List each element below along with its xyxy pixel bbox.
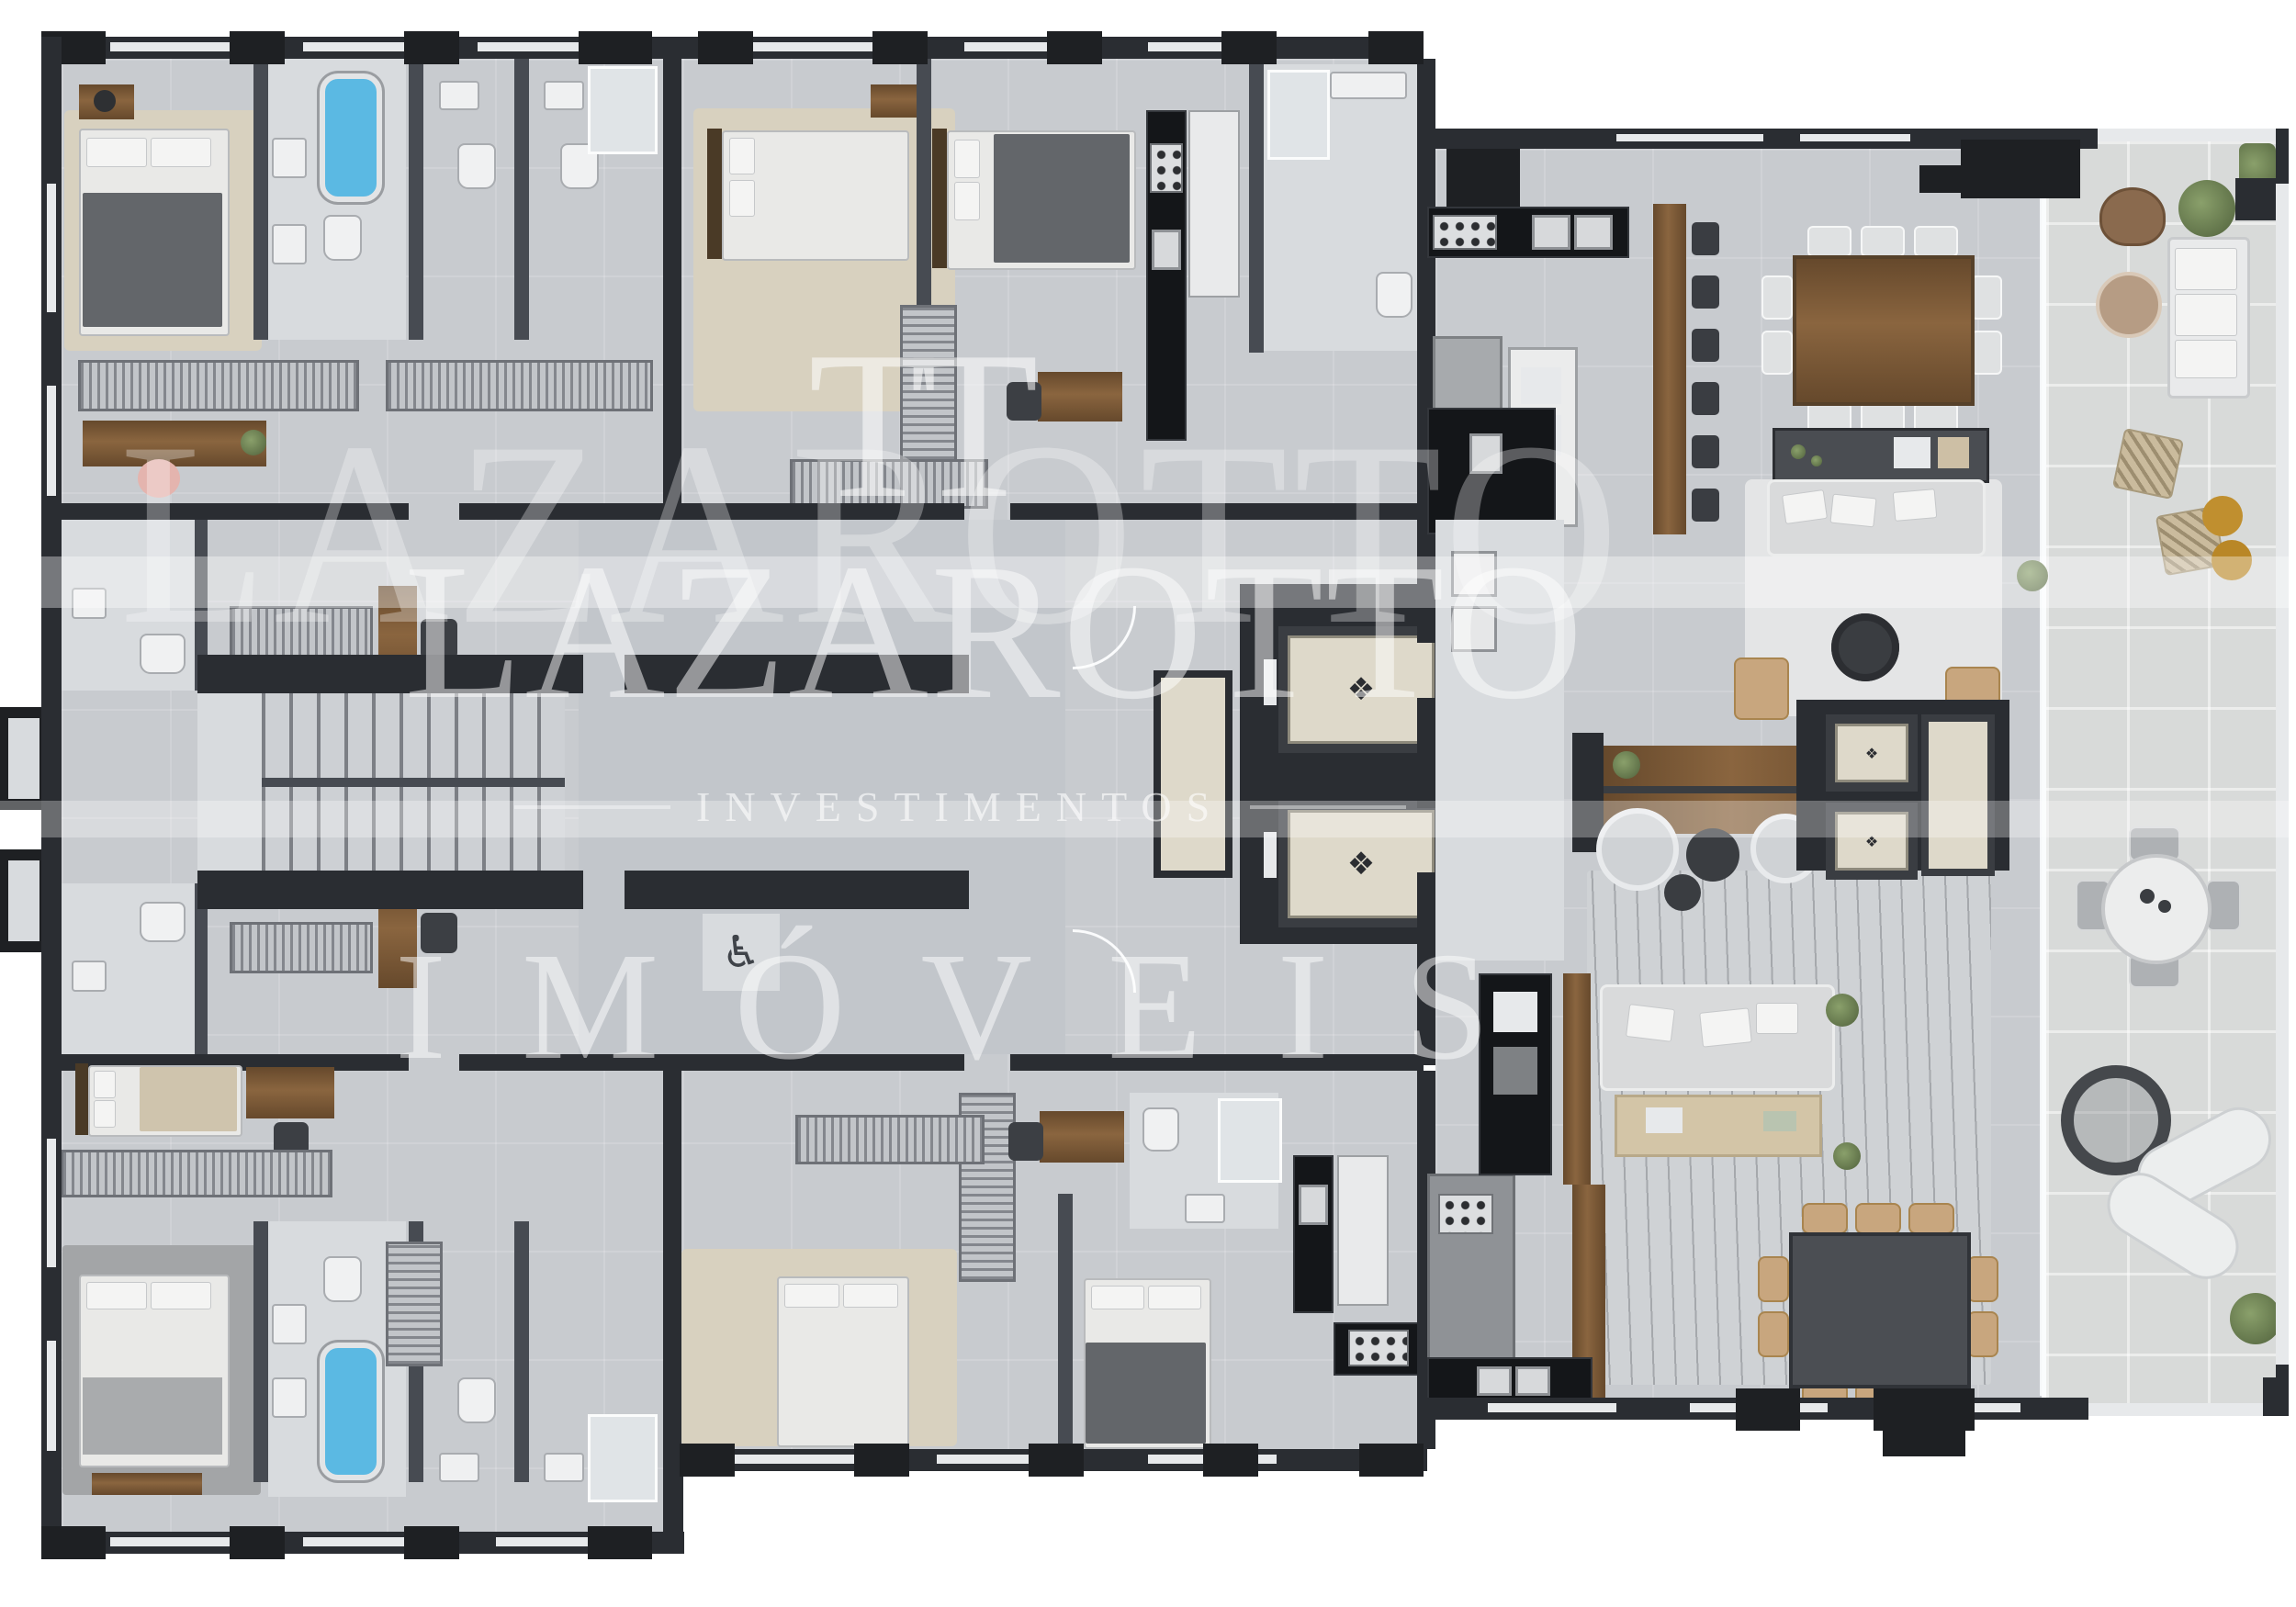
lounge-chair-leather bbox=[2099, 187, 2166, 246]
bed-pillow bbox=[784, 1284, 839, 1308]
toilet bbox=[323, 215, 362, 261]
sofa-cushion bbox=[2175, 340, 2237, 378]
hall-floor bbox=[579, 520, 1065, 1054]
sofa-pillow bbox=[1893, 489, 1938, 522]
dining-table-wood bbox=[1793, 255, 1975, 406]
sofa-cushion bbox=[2175, 294, 2237, 336]
facade-pillar bbox=[1203, 1444, 1258, 1477]
dining-chair bbox=[1802, 1203, 1848, 1234]
closet-rail bbox=[230, 922, 373, 973]
bed-headboard bbox=[932, 129, 947, 268]
bar-stool bbox=[1692, 329, 1719, 362]
stair-wall-top bbox=[197, 655, 583, 693]
wall-wc-bath2 bbox=[514, 1221, 529, 1482]
bath2-sink bbox=[544, 81, 584, 110]
oven bbox=[1521, 367, 1561, 404]
nightstand bbox=[871, 84, 922, 118]
toilet bbox=[140, 634, 186, 674]
facade-pillar bbox=[1221, 31, 1277, 64]
wc-sink bbox=[72, 961, 107, 992]
window-sill bbox=[753, 42, 891, 51]
vanity-sink bbox=[272, 1377, 307, 1418]
dining-chair bbox=[1967, 1256, 1998, 1302]
dining-chair bbox=[1758, 1256, 1789, 1302]
bathtub bbox=[320, 1343, 382, 1480]
toilet bbox=[457, 143, 496, 189]
dining-chair bbox=[1914, 226, 1958, 257]
window-sill bbox=[47, 1341, 56, 1451]
bed-blanket bbox=[1086, 1343, 1206, 1444]
bar-stool bbox=[1692, 222, 1719, 255]
bar-stool bbox=[1692, 275, 1719, 309]
bathtub bbox=[320, 73, 382, 202]
plant bbox=[2178, 180, 2235, 237]
facade-pillar bbox=[854, 1444, 909, 1477]
staircase-flight-down bbox=[262, 786, 565, 871]
facade-niche-inner bbox=[8, 718, 39, 799]
stair-wall-bottom bbox=[197, 871, 583, 909]
facade-pillar bbox=[404, 1526, 459, 1559]
elevator-medallion-icon: ❖ bbox=[1347, 671, 1375, 708]
plant bbox=[1833, 1142, 1861, 1170]
private-core-shaft bbox=[1921, 714, 1995, 876]
closet-rail bbox=[386, 1242, 443, 1366]
kitchen2-sink bbox=[1515, 1366, 1550, 1396]
cooktop bbox=[1433, 215, 1497, 250]
wc-sink bbox=[439, 81, 479, 110]
wall-left-right-wing bbox=[1417, 698, 1435, 808]
pouf-yellow bbox=[2212, 540, 2252, 580]
wall-mid-top bbox=[1010, 503, 1424, 520]
window-sill bbox=[478, 42, 588, 51]
kitchen-double-sink bbox=[1532, 215, 1570, 250]
appliance bbox=[1493, 1047, 1537, 1095]
bed-pillow bbox=[954, 140, 980, 178]
stone-side-table bbox=[2096, 272, 2162, 338]
vanity-sink bbox=[272, 1304, 307, 1344]
bed-headboard bbox=[75, 1063, 88, 1135]
toilet bbox=[140, 902, 186, 942]
wall-bedrooms bbox=[917, 59, 931, 318]
bed-pillow bbox=[151, 1282, 211, 1309]
shower bbox=[588, 1414, 658, 1502]
sofa-pillow bbox=[1626, 1004, 1675, 1042]
dining-chair bbox=[1861, 226, 1905, 257]
window-sill bbox=[110, 42, 248, 51]
facade-niche-inner bbox=[8, 860, 39, 941]
vanity-sink bbox=[1185, 1194, 1225, 1223]
elevator-door bbox=[1264, 832, 1277, 878]
closet-rail bbox=[78, 360, 359, 411]
desk bbox=[246, 1067, 334, 1118]
bed-pillow bbox=[729, 138, 755, 174]
window-sill bbox=[1616, 134, 1763, 141]
private-elevator-cabin: ❖ bbox=[1826, 803, 1918, 880]
dining-chair bbox=[1855, 1203, 1901, 1234]
table-decor bbox=[2140, 889, 2155, 904]
vanity-sink bbox=[1330, 72, 1407, 99]
facade-pillar bbox=[41, 1526, 106, 1559]
bar-counter bbox=[1653, 204, 1686, 534]
shower bbox=[1218, 1098, 1282, 1183]
cooktop bbox=[1150, 143, 1183, 193]
kitchen-double-sink bbox=[1574, 215, 1613, 250]
dining-chair bbox=[1761, 331, 1793, 375]
bar-stool bbox=[1692, 489, 1719, 522]
facade-pillar bbox=[404, 31, 459, 64]
dining-chair bbox=[1971, 331, 2002, 375]
tall-cabinet bbox=[1563, 973, 1591, 1185]
dressing-desk bbox=[83, 421, 266, 466]
plant bbox=[1811, 455, 1822, 466]
closet-rail bbox=[795, 1115, 985, 1164]
wall-mid-top bbox=[459, 503, 964, 520]
sofa-pillow bbox=[1756, 1003, 1798, 1034]
dining-chair bbox=[1971, 275, 2002, 320]
island-sink bbox=[1469, 433, 1503, 474]
side-table-round bbox=[1596, 808, 1679, 891]
console-books bbox=[1763, 1111, 1796, 1131]
armchair bbox=[1734, 657, 1789, 720]
elevator-medallion-icon: ❖ bbox=[1865, 833, 1878, 850]
pouf-yellow bbox=[2202, 496, 2243, 536]
bed-pillow bbox=[1148, 1286, 1201, 1309]
shower bbox=[1267, 70, 1330, 160]
private-elevator-cabin: ❖ bbox=[1826, 714, 1918, 792]
bed-pillow bbox=[151, 138, 211, 167]
wc-sink bbox=[439, 1453, 479, 1482]
bed-pillow bbox=[954, 182, 980, 220]
vanity-sink bbox=[272, 138, 307, 178]
desk-chair bbox=[421, 913, 457, 953]
bed-headboard bbox=[707, 129, 722, 259]
desk-chair bbox=[1008, 1122, 1043, 1161]
elevator-medallion-icon: ❖ bbox=[1865, 745, 1878, 762]
terrace-round-table bbox=[2101, 854, 2212, 964]
wall-bed-bath bbox=[253, 1221, 268, 1482]
facade-pillar bbox=[1359, 1444, 1424, 1477]
facade-pillar bbox=[230, 31, 285, 64]
dressing-chair bbox=[138, 459, 180, 498]
dining-chair bbox=[1761, 275, 1793, 320]
kitchen-sink bbox=[1152, 230, 1181, 270]
wall-bedrooms bbox=[1058, 1194, 1073, 1469]
closet-rail bbox=[61, 1150, 332, 1197]
wall-mid-bottom bbox=[1010, 1054, 1424, 1071]
dining-chair bbox=[1967, 1311, 1998, 1357]
plant bbox=[1613, 751, 1640, 779]
terrace-railing bbox=[2276, 129, 2289, 1416]
washer bbox=[1451, 551, 1497, 597]
bar-stool bbox=[1692, 435, 1719, 468]
table-decor bbox=[2158, 900, 2171, 913]
plant bbox=[1791, 444, 1806, 459]
stair-wall-bottom bbox=[625, 871, 969, 909]
console-books bbox=[1646, 1107, 1683, 1133]
sofa-pillow bbox=[1782, 489, 1828, 524]
plant bbox=[2017, 560, 2048, 591]
dryer bbox=[1451, 606, 1497, 652]
plant bbox=[241, 430, 266, 455]
kitchen-counter bbox=[1293, 1155, 1334, 1313]
facade-pillar bbox=[1883, 1420, 1965, 1456]
kitchen-column bbox=[1188, 110, 1240, 298]
kitchen-sink bbox=[1299, 1185, 1328, 1225]
bed-throw bbox=[83, 1377, 222, 1455]
plant bbox=[1826, 994, 1859, 1027]
coffee-pouf bbox=[1831, 613, 1899, 681]
wall-mid-top bbox=[51, 503, 409, 520]
header-block bbox=[1961, 140, 2080, 198]
bed-blanket bbox=[83, 193, 222, 327]
bed-blanket bbox=[994, 134, 1130, 263]
lamp bbox=[94, 90, 116, 112]
facade-pillar bbox=[680, 1444, 735, 1477]
bar-stool bbox=[1692, 382, 1719, 415]
closet-rail bbox=[790, 459, 988, 509]
desk bbox=[1040, 1111, 1124, 1163]
sofa-pillow bbox=[1829, 494, 1876, 528]
toilet bbox=[1376, 272, 1412, 318]
bed-pillow bbox=[1091, 1286, 1144, 1309]
desk bbox=[1038, 372, 1122, 421]
wall-left-right-wing bbox=[1417, 872, 1435, 1065]
closet-rail bbox=[386, 360, 653, 411]
cooktop bbox=[1348, 1330, 1409, 1366]
bed-pillow bbox=[843, 1284, 898, 1308]
sofa-cushion bbox=[2175, 248, 2237, 290]
dining-chair bbox=[1758, 1311, 1789, 1357]
staircase-flight-up bbox=[262, 693, 565, 778]
terrace-edge bbox=[2098, 129, 2287, 141]
wall-bath bbox=[1249, 59, 1264, 353]
facade-pillar bbox=[698, 31, 753, 64]
wall-wc-bath2 bbox=[514, 59, 529, 340]
bed-pillow bbox=[94, 1071, 116, 1098]
wall-bath-wc bbox=[409, 59, 423, 340]
bed-pillow bbox=[86, 138, 147, 167]
window-sill bbox=[47, 184, 56, 312]
facade-pillar bbox=[579, 31, 652, 64]
sofa-pillow bbox=[1699, 1007, 1752, 1047]
toilet bbox=[323, 1256, 362, 1302]
sideboard-decor bbox=[1894, 437, 1930, 468]
bath2-sink bbox=[544, 1453, 584, 1482]
window-sill bbox=[47, 1139, 56, 1267]
stair-wall-top bbox=[625, 655, 969, 693]
party-wall bbox=[663, 59, 681, 514]
wall-bed-bath bbox=[253, 59, 268, 340]
bed-blanket bbox=[140, 1067, 237, 1131]
railing-cap bbox=[2276, 129, 2289, 184]
wall-mid-bottom bbox=[459, 1054, 964, 1071]
facade-pillar bbox=[1368, 31, 1424, 64]
wicker-cube-chair bbox=[2112, 428, 2184, 500]
ottoman bbox=[1664, 874, 1701, 911]
terrace-glass-wall bbox=[2040, 147, 2046, 1396]
dining-chair bbox=[1908, 1203, 1954, 1234]
desk-chair bbox=[421, 619, 457, 659]
dining-table-dark bbox=[1789, 1232, 1971, 1388]
window-sill bbox=[1488, 1403, 1616, 1412]
appliance bbox=[1493, 992, 1537, 1032]
facade-pillar bbox=[872, 31, 928, 64]
elevator-door bbox=[1264, 659, 1277, 705]
floor-plan: ♿ ❖ ❖ ✦ bbox=[0, 0, 2296, 1607]
facade-pillar bbox=[588, 1526, 652, 1559]
dining-chair bbox=[1807, 226, 1851, 257]
railing-cap bbox=[2276, 1365, 2289, 1416]
wc-sink bbox=[72, 588, 107, 619]
toilet bbox=[1142, 1107, 1179, 1152]
facade-pillar bbox=[230, 1526, 285, 1559]
facade-pillar bbox=[1047, 31, 1102, 64]
window-sill bbox=[47, 386, 56, 496]
closet-rail bbox=[230, 606, 373, 657]
plant bbox=[2230, 1293, 2281, 1344]
vanity-sink bbox=[272, 224, 307, 264]
stair-rail bbox=[262, 778, 565, 787]
desk-chair bbox=[1007, 382, 1041, 421]
toilet bbox=[457, 1377, 496, 1423]
sideboard-decor bbox=[1938, 437, 1969, 468]
window-sill bbox=[735, 1455, 872, 1464]
bed-pillow bbox=[94, 1100, 116, 1128]
service-shaft bbox=[1154, 670, 1232, 878]
window-sill bbox=[110, 1537, 239, 1546]
fridge bbox=[1433, 336, 1503, 415]
cooktop bbox=[1438, 1194, 1493, 1234]
bed-pillow bbox=[86, 1282, 147, 1309]
kitchen-column bbox=[1337, 1155, 1389, 1306]
bed-pillow bbox=[729, 180, 755, 217]
facade-pillar bbox=[1736, 1388, 1800, 1431]
round-chair bbox=[1686, 828, 1739, 882]
facade-pillar bbox=[1029, 1444, 1084, 1477]
shower bbox=[588, 66, 658, 154]
bed-bench bbox=[92, 1473, 202, 1495]
stair-landing bbox=[197, 693, 262, 871]
elevator-medallion-icon: ❖ bbox=[1347, 846, 1375, 882]
window-sill bbox=[1800, 134, 1910, 141]
kitchen2-sink bbox=[1477, 1366, 1512, 1396]
terrace-edge bbox=[2088, 1403, 2287, 1416]
accessibility-icon: ♿ bbox=[703, 914, 780, 991]
